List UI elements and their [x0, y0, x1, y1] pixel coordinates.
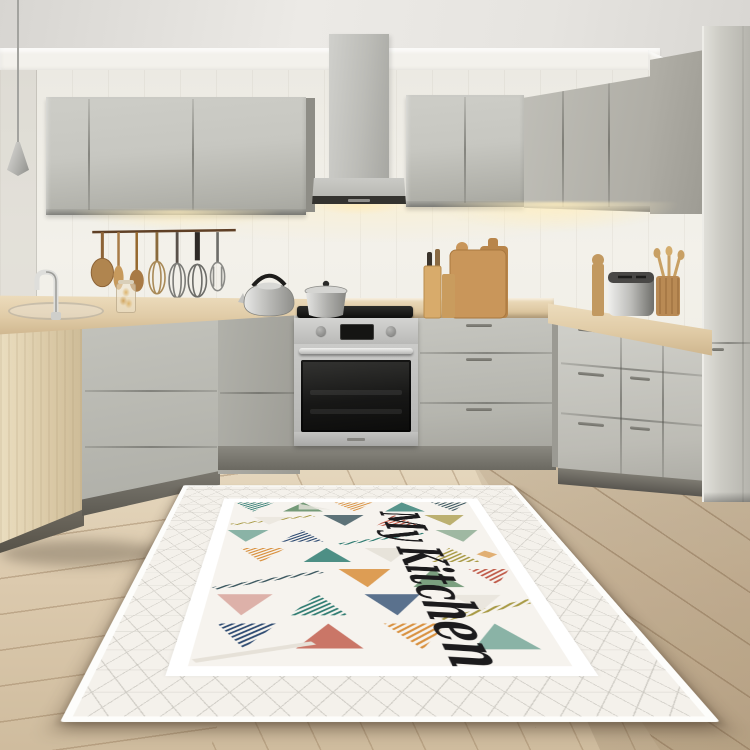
hood-brand-label — [348, 199, 370, 202]
drawer-seam — [85, 446, 218, 448]
glass-jar — [116, 283, 136, 313]
range-hood — [312, 178, 406, 204]
upper-cabinets-right-wall — [524, 76, 652, 212]
toe-kick — [218, 446, 556, 470]
oven-control-panel — [294, 318, 418, 344]
drawer-handle — [466, 324, 492, 327]
drawer-seam — [220, 392, 299, 394]
upper-cabinets-right — [406, 95, 524, 207]
whisk-icon — [169, 232, 185, 298]
oven-rack-reflection — [310, 390, 402, 395]
flat-whisk-icon — [210, 232, 224, 291]
pendant-light-cord — [17, 0, 19, 144]
cabinet-shadow — [704, 492, 750, 502]
toaster-icon — [608, 272, 654, 316]
drawer-handle — [630, 426, 650, 431]
cabinet-seam — [620, 323, 622, 475]
oven — [294, 318, 418, 446]
door-seam — [88, 99, 90, 210]
drawer-handle — [466, 408, 492, 411]
whisk-icon — [149, 232, 165, 294]
drawer-seam — [420, 402, 554, 404]
cutting-board-icon — [592, 264, 604, 316]
oven-brand-label — [347, 438, 365, 441]
oven-base-strip — [294, 432, 418, 446]
tall-cabinet-right — [702, 26, 750, 502]
oven-knob — [386, 326, 396, 336]
kitchen-rug: My Kitchen — [60, 485, 720, 722]
range-hood-chimney — [329, 34, 389, 182]
drawer-seam — [85, 390, 218, 392]
drawer-seam — [420, 352, 554, 354]
wooden-spoons-icon — [654, 246, 685, 278]
cutting-board-icon — [450, 242, 506, 318]
door-seam — [464, 97, 466, 202]
door-seam — [562, 79, 564, 207]
door-seam — [192, 99, 194, 210]
wooden-spoon-icon — [91, 232, 113, 287]
oven-knob — [316, 326, 326, 336]
faucet-icon — [26, 268, 72, 320]
door-handle — [712, 348, 724, 351]
rail-bar — [92, 230, 235, 232]
hood-light-glow — [312, 204, 406, 216]
pot-icon — [301, 277, 351, 319]
counter-appliances — [584, 246, 692, 318]
oven-rack-reflection — [310, 409, 402, 414]
upper-cabinets-left — [46, 97, 306, 215]
oven-door-glass — [301, 360, 411, 432]
oven-handle — [299, 348, 413, 354]
kettle-icon — [238, 263, 300, 319]
drawer-handle — [630, 376, 650, 381]
drawer-handle — [578, 422, 604, 427]
door-seam — [608, 79, 610, 207]
kitchen-scene: My Kitchen — [0, 0, 750, 750]
hood-control-strip — [312, 196, 406, 204]
drawer-handle — [466, 358, 492, 361]
rug-perspective-wrap: My Kitchen — [17, 480, 720, 722]
whisk-icon — [188, 232, 206, 297]
utensil-crock-icon — [656, 276, 680, 316]
cabinet-seam — [662, 327, 664, 479]
oven-display — [340, 324, 374, 340]
upper-corner-cabinet — [650, 50, 704, 214]
door-seam — [742, 26, 744, 502]
cutting-boards-and-knife-block — [418, 236, 524, 320]
drawer-handle — [578, 372, 604, 377]
